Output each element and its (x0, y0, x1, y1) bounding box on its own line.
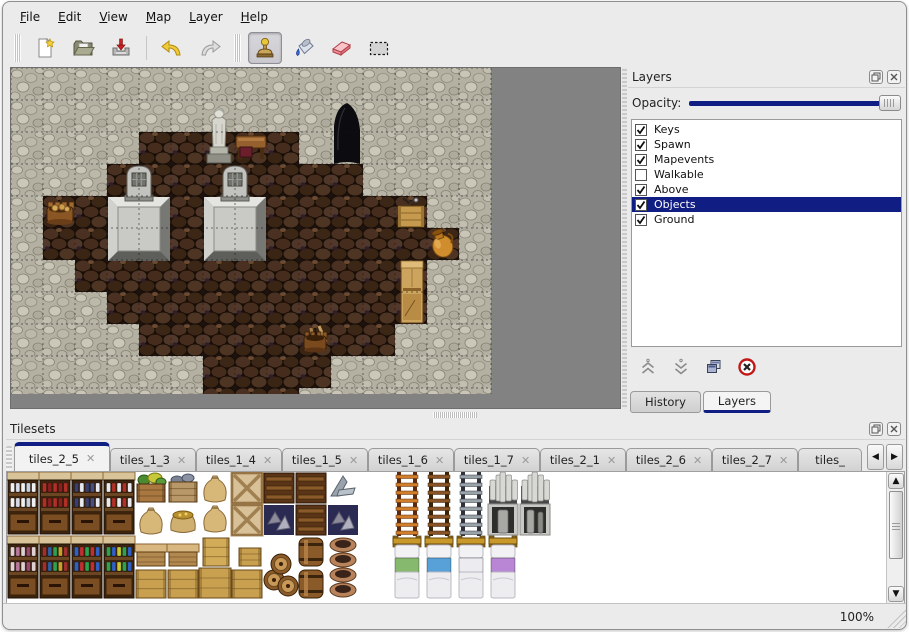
scroll-tabs-left-button[interactable]: ◀ (867, 444, 884, 470)
close-tab-icon[interactable]: ✕ (86, 452, 95, 465)
tilesets-panel-titlebar: Tilesets (6, 419, 905, 440)
tab-scroll-buttons: ◀ ▶ (867, 444, 903, 470)
tilesets-panel-title: Tilesets (10, 422, 865, 436)
move-layer-down-button[interactable] (671, 357, 691, 377)
tile-shelfA (71, 472, 103, 534)
layer-label: Ground (654, 213, 694, 226)
selection-rect-icon (367, 36, 391, 60)
tile-counter (135, 544, 167, 566)
layer-row-mapevents[interactable]: Mapevents (632, 152, 901, 167)
tile-bed (393, 536, 421, 598)
resize-grip[interactable] (886, 608, 906, 628)
tilesets-dock: Tilesets tiles_2_5✕tiles_1_3✕tiles_1_4✕t… (6, 419, 905, 603)
tile-bed (457, 536, 485, 598)
redo-button[interactable] (193, 32, 227, 64)
tileset-tab-tiles_1_5[interactable]: tiles_1_5✕ (282, 448, 368, 471)
toolbar-separator (146, 36, 147, 60)
status-bar: 100% (3, 603, 907, 630)
eraser-tool-button[interactable] (324, 32, 358, 64)
tileset-tab-tiles_2_5[interactable]: tiles_2_5✕ (14, 442, 110, 471)
layer-label: Above (654, 183, 689, 196)
tileset-tab-label: tiles_2_1 (550, 453, 600, 467)
layer-label: Mapevents (654, 153, 714, 166)
opacity-slider[interactable] (689, 95, 901, 111)
tileset-scrollbar: ▲ ▼ (886, 472, 904, 603)
layer-checkbox[interactable] (635, 184, 647, 196)
app-window: FileEditViewMapLayerHelp (2, 1, 907, 630)
layer-row-spawn[interactable]: Spawn (632, 137, 901, 152)
layer-row-keys[interactable]: Keys (632, 122, 901, 137)
delete-layer-button[interactable] (737, 357, 757, 377)
tile-stonedoor (488, 504, 518, 535)
layers-list: KeysSpawnMapeventsWalkableAboveObjectsGr… (631, 119, 902, 347)
fill-bucket-icon (291, 36, 315, 60)
tile-crate (168, 570, 198, 598)
tile-ladder (396, 472, 418, 536)
opacity-row: Opacity: (628, 88, 905, 117)
delete-icon (737, 357, 757, 377)
float-panel-button[interactable] (869, 70, 883, 84)
tile-navypile (264, 505, 294, 535)
tileset-tab-tiles_2_6[interactable]: tiles_2_6✕ (626, 448, 712, 471)
menu-help[interactable]: Help (232, 7, 277, 27)
tile-bandcrate (264, 473, 294, 503)
undo-icon (159, 36, 185, 60)
opacity-slider-track[interactable] (689, 101, 899, 106)
tile-bed (489, 536, 517, 598)
tile-stonedoor (520, 504, 550, 535)
float-icon (871, 424, 881, 434)
tile-sack2 (204, 476, 226, 532)
layer-label: Objects (654, 198, 696, 211)
tileset-tab-tiles_1_6[interactable]: tiles_1_6✕ (368, 448, 454, 471)
close-icon (889, 72, 899, 82)
layer-checkbox[interactable] (635, 154, 647, 166)
tile-sack (140, 508, 162, 534)
fill-tool-button[interactable] (286, 32, 320, 64)
close-tab-icon[interactable]: ✕ (607, 454, 616, 467)
float-icon (871, 72, 881, 82)
tileset-tab-label: tiles_ (815, 453, 845, 467)
tile-navypile (328, 505, 358, 535)
tileset-tab-tiles_2_7[interactable]: tiles_2_7✕ (712, 448, 798, 471)
vertical-splitter[interactable] (622, 67, 627, 409)
tileset-tab-label: tiles_2_5 (29, 452, 79, 466)
tileset-tab-label: tiles_2_6 (636, 453, 686, 467)
tile-shelfB (71, 536, 103, 598)
copy-icon (705, 358, 723, 376)
tile-xcrate (232, 505, 262, 535)
tileset-tab-label: tiles_1_4 (206, 453, 256, 467)
tile-orecrate (169, 474, 197, 502)
layer-checkbox[interactable] (635, 139, 647, 151)
tile-bandcrate (296, 505, 326, 535)
layers-dock: Layers Opacity: KeysSpawnMapeventsWalkab… (628, 67, 905, 413)
layer-label: Keys (654, 123, 680, 136)
scroll-up-button[interactable]: ▲ (888, 473, 904, 489)
chevron-down-icon (672, 358, 690, 376)
layer-row-walkable[interactable]: Walkable (632, 167, 901, 182)
tile-shelfA (39, 472, 71, 534)
tile-arch (521, 472, 550, 504)
undo-button[interactable] (155, 32, 189, 64)
close-tab-icon[interactable]: ✕ (263, 454, 272, 467)
tile-crate (136, 570, 166, 598)
close-panel-button[interactable] (887, 70, 901, 84)
map-canvas[interactable] (10, 67, 621, 409)
close-tilesets-button[interactable] (887, 422, 901, 436)
save-button[interactable] (104, 32, 138, 64)
new-file-button[interactable] (28, 32, 62, 64)
scroll-tabs-right-button[interactable]: ▶ (886, 444, 903, 470)
chevron-up-icon (639, 358, 657, 376)
close-icon (889, 424, 899, 434)
map-object-basket-food (47, 202, 74, 225)
tile-barrelstack (299, 538, 323, 598)
menu-bar: FileEditViewMapLayerHelp (11, 6, 277, 28)
tile-opensack (171, 511, 196, 533)
tile-shelfA (103, 472, 135, 534)
tileset-tab-label: tiles_2_7 (722, 453, 772, 467)
tileset-tab-tiles_2_1[interactable]: tiles_2_1✕ (540, 448, 626, 471)
opacity-label: Opacity: (632, 96, 681, 110)
tile-potstack (330, 538, 356, 597)
float-tilesets-button[interactable] (869, 422, 883, 436)
tile-smallcrate (239, 548, 261, 566)
menu-view[interactable]: View (90, 7, 136, 27)
tileset-canvas[interactable]: ▲ ▼ (6, 471, 905, 604)
save-icon (109, 36, 133, 60)
new-file-icon (33, 36, 57, 60)
layer-row-ground[interactable]: Ground (632, 212, 901, 227)
close-tab-icon[interactable]: ✕ (521, 454, 530, 467)
tileset-tab-tiles[interactable]: tiles_ (798, 448, 862, 471)
tile-bandcrate (296, 473, 326, 503)
tile-shelfB (39, 536, 71, 598)
tile-shelfB (7, 536, 39, 598)
tileset-tab-label: tiles_1_7 (464, 453, 514, 467)
toolbar (9, 30, 398, 66)
layer-row-objects[interactable]: Objects (632, 197, 901, 212)
layers-panel-title: Layers (632, 70, 865, 84)
tile-ladder (460, 472, 482, 536)
layers-panel-titlebar: Layers (628, 67, 905, 88)
tile-cratestack (199, 538, 231, 598)
tileset-tab-label: tiles_1_6 (378, 453, 428, 467)
duplicate-layer-button[interactable] (704, 357, 724, 377)
tab-bar-grip[interactable] (6, 446, 12, 470)
tile-planter (137, 473, 166, 502)
layer-row-above[interactable]: Above (632, 182, 901, 197)
open-button[interactable] (66, 32, 100, 64)
close-tab-icon[interactable]: ✕ (349, 454, 358, 467)
menu-layer[interactable]: Layer (180, 7, 231, 27)
close-tab-icon[interactable]: ✕ (693, 454, 702, 467)
tileset-tab-tiles_1_7[interactable]: tiles_1_7✕ (454, 448, 540, 471)
select-tool-button[interactable] (362, 32, 396, 64)
tile-barrelpile (264, 554, 298, 596)
layer-checkbox[interactable] (635, 124, 647, 136)
scrollbar-thumb[interactable] (889, 491, 903, 559)
stamp-tool-icon (253, 36, 277, 60)
tile-shelfA (7, 472, 39, 534)
tile-scrap (331, 476, 355, 496)
menu-edit[interactable]: Edit (49, 7, 90, 27)
opacity-slider-handle[interactable] (879, 95, 901, 111)
tile-shelfB (103, 536, 135, 598)
tileset-tab-bar: tiles_2_5✕tiles_1_3✕tiles_1_4✕tiles_1_5✕… (6, 441, 905, 471)
menu-file[interactable]: File (11, 7, 49, 27)
open-folder-icon (71, 36, 95, 60)
eraser-icon (329, 36, 353, 60)
toolbar-grip[interactable] (14, 34, 21, 62)
redo-icon (197, 36, 223, 60)
close-tab-icon[interactable]: ✕ (177, 454, 186, 467)
layer-label: Walkable (654, 168, 704, 181)
map-object-table (236, 136, 266, 159)
layer-checkbox[interactable] (635, 199, 647, 211)
layer-checkbox[interactable] (635, 214, 647, 226)
tile-xcrate (232, 473, 262, 503)
stamp-tool-button[interactable] (248, 32, 282, 64)
close-tab-icon[interactable]: ✕ (779, 454, 788, 467)
layer-label: Spawn (654, 138, 691, 151)
close-tab-icon[interactable]: ✕ (435, 454, 444, 467)
tile-counter (167, 544, 199, 566)
scroll-down-button[interactable]: ▼ (888, 586, 904, 602)
tile-ladder (428, 472, 450, 536)
tile-arch (489, 472, 518, 504)
tileset-tab-tiles_1_4[interactable]: tiles_1_4✕ (196, 448, 282, 471)
layer-checkbox[interactable] (635, 169, 647, 181)
menu-map[interactable]: Map (137, 7, 180, 27)
zoom-level: 100% (840, 610, 874, 624)
toolbar-grip-2[interactable] (234, 34, 241, 62)
move-layer-up-button[interactable] (638, 357, 658, 377)
horizontal-splitter[interactable] (3, 410, 907, 419)
tileset-tab-label: tiles_1_3 (120, 453, 170, 467)
tileset-tab-label: tiles_1_5 (292, 453, 342, 467)
tile-crate (232, 570, 262, 598)
tile-bed (425, 536, 453, 598)
layer-actions (628, 347, 905, 379)
tileset-tab-tiles_1_3[interactable]: tiles_1_3✕ (110, 448, 196, 471)
